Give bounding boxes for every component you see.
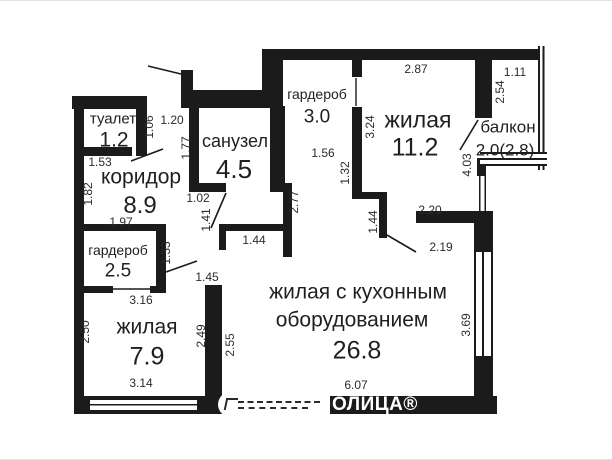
room-area-label: 2.0(2.8) <box>476 142 535 159</box>
dimension-label: 1.20 <box>160 114 183 126</box>
dimension-label: 1.77 <box>180 136 192 159</box>
room-name-label: коридор <box>101 167 181 188</box>
roof-arrow-icon <box>224 398 239 410</box>
dimension-label: 3.69 <box>460 313 472 336</box>
room-name-label: гардероб <box>287 87 347 101</box>
room-name-label: балкон <box>480 119 535 136</box>
dimension-label: 1.82 <box>82 182 94 205</box>
room-area-label: 7.9 <box>130 345 165 370</box>
dimension-label: 2.87 <box>404 63 427 75</box>
room-name-label: гардероб <box>88 243 148 257</box>
watermark-pill <box>218 392 330 417</box>
room-name-label: жилая с кухонным <box>269 282 447 303</box>
dimension-label: 2.20 <box>418 204 441 216</box>
toilet-door-line <box>131 149 163 161</box>
dimension-label: 2.77 <box>288 190 300 213</box>
room-area-label: 3.0 <box>304 108 330 127</box>
room-name-label: санузел <box>202 132 268 150</box>
dimension-label: 1.11 <box>504 66 526 78</box>
room-area-label: 1.2 <box>99 130 128 151</box>
dimension-label: 1.53 <box>88 156 111 168</box>
dimension-label: 3.14 <box>129 377 152 389</box>
dimension-label: 1.97 <box>109 216 132 228</box>
dimension-label: 1.33 <box>160 241 172 264</box>
room-name-label: жилая <box>385 109 452 132</box>
dimension-label: 1.44 <box>242 234 265 246</box>
room-area-label: 11.2 <box>392 136 439 161</box>
floor-plan: туалет1.2коридор8.9санузел4.5гардероб3.0… <box>0 0 612 460</box>
watermark-logo: ОЛИЦА® <box>218 392 418 417</box>
dimension-label: 6.07 <box>344 379 367 391</box>
dimension-label: 1.02 <box>186 192 209 204</box>
dimension-label: 3.16 <box>129 294 152 306</box>
watermark-text: ОЛИЦА® <box>332 394 418 416</box>
dimension-label: 3.24 <box>364 115 376 138</box>
dimension-label: 1.41 <box>200 208 212 231</box>
floor-plan-page: туалет1.2коридор8.9санузел4.5гардероб3.0… <box>0 0 612 460</box>
dimension-label: 1.56 <box>311 147 334 159</box>
room-area-label: 26.8 <box>333 339 382 364</box>
dimension-label: 1.06 <box>143 115 155 138</box>
dimension-label: 2.54 <box>494 80 506 103</box>
room-area-label: 4.5 <box>216 156 252 182</box>
dimension-label: 1.45 <box>195 271 218 283</box>
dimension-label: 1.44 <box>367 210 379 233</box>
room-area-label: 2.5 <box>105 262 131 281</box>
room-name-label: туалет <box>90 112 136 127</box>
entrance-door-line <box>148 66 181 74</box>
bathroom-door-line <box>211 193 226 228</box>
room-name-label: жилая <box>116 317 177 338</box>
dimension-label: 1.32 <box>339 161 351 184</box>
room-name-label: оборудованием <box>276 310 429 331</box>
watermark-dash-line <box>238 407 308 409</box>
dimension-label: 2.19 <box>429 241 452 253</box>
watermark-dash-line <box>238 401 320 403</box>
dimension-label: 2.50 <box>79 320 91 343</box>
kitchen-door-line <box>387 235 416 252</box>
dimension-label: 2.49 <box>195 324 207 347</box>
dimension-label: 2.55 <box>224 333 236 356</box>
dimension-label: 4.03 <box>461 153 473 176</box>
